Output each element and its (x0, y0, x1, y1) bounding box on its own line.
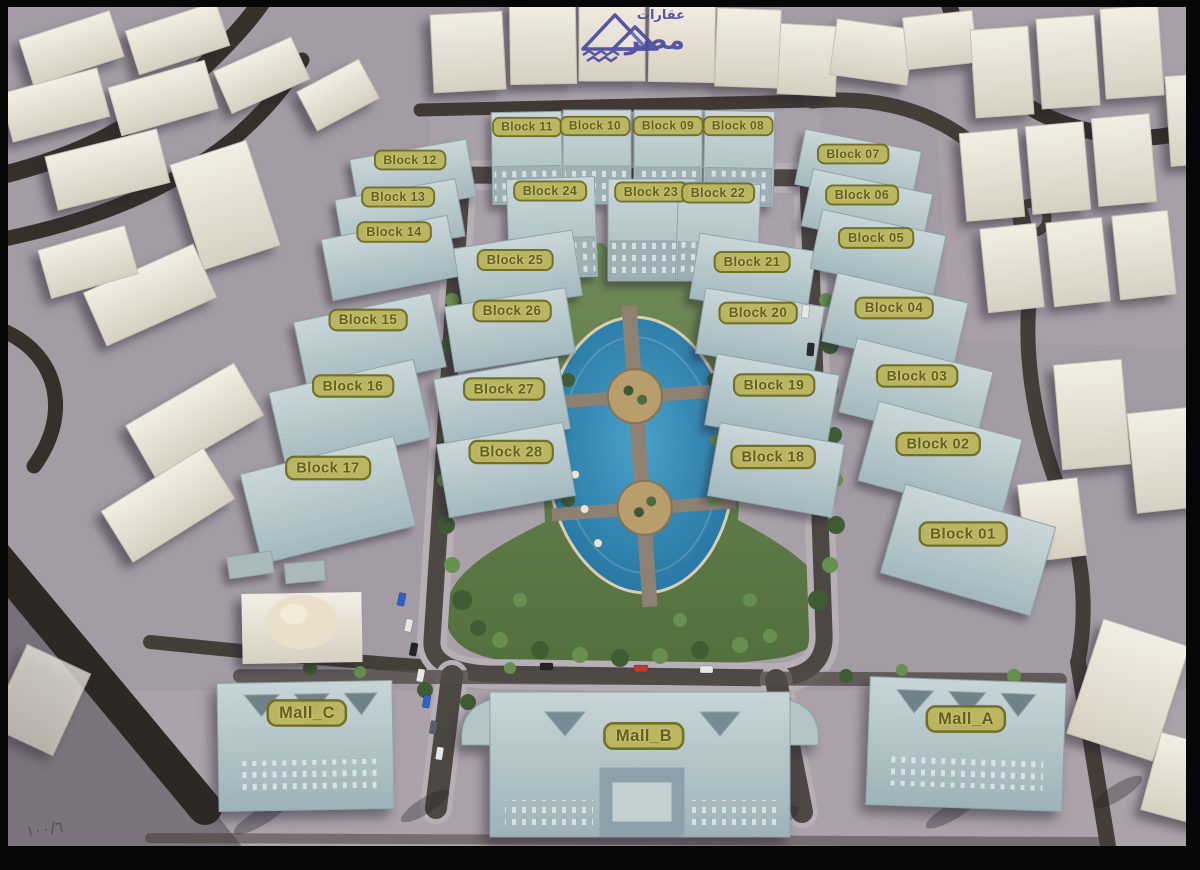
waves-icon (583, 51, 619, 61)
frame-top (0, 0, 1200, 7)
mall-b-building (462, 692, 819, 837)
mosque (241, 592, 362, 664)
logo-word-top: عقارات (637, 8, 685, 23)
developer-logo: عقارات مصر (573, 3, 689, 65)
masterplan-scene (0, 0, 1200, 870)
mall-c-building (217, 680, 394, 811)
mall-a-building (866, 677, 1066, 812)
aerial-render: عقارات مصر Block 11Block 10Block 09Block… (0, 0, 1200, 870)
frame-left (0, 0, 8, 870)
logo-word-main: مصر (623, 25, 685, 56)
frame-right (1186, 0, 1200, 870)
frame-bottom (0, 846, 1200, 870)
